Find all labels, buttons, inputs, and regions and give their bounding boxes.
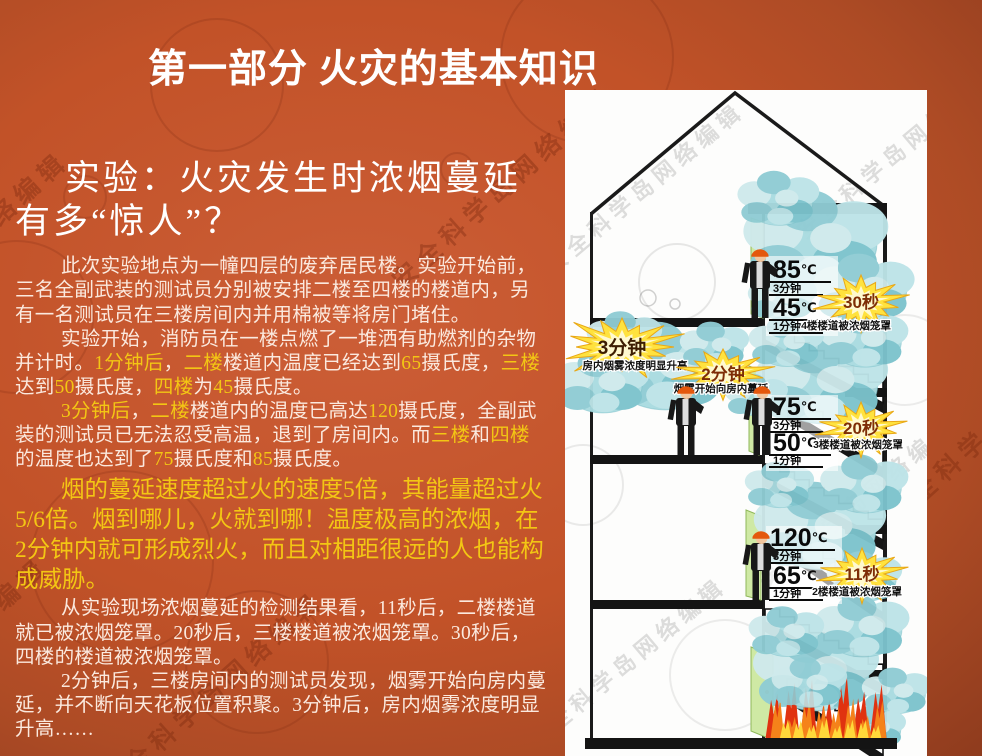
experiment-subtitle: 实验：火灾发生时浓烟蔓延有多“惊人”？ (15, 158, 540, 243)
paragraph: 2分钟后，三楼房间内的测试员发现，烟雾开始向房内蔓延，并不断向天花板位置积聚。3… (15, 670, 548, 742)
left-wall (590, 212, 593, 748)
paragraph: 实验开始，消防员在一楼点燃了一堆洒有助燃剂的杂物并计时。1分钟后，二楼楼道内温度… (15, 328, 548, 400)
text-run: 摄氏度， (421, 353, 500, 374)
slide-title: 第一部分 火灾的基本知识 (148, 38, 599, 94)
text-run: 75 (154, 449, 174, 470)
caption-3f: 3楼楼道被浓烟笼罩 (813, 438, 903, 451)
svg-text:30秒: 30秒 (843, 292, 879, 312)
text-run: 65 (401, 353, 421, 374)
text-run: 为 (194, 377, 214, 398)
text-run: 45 (213, 377, 233, 398)
text-run: 摄氏度。 (233, 377, 312, 398)
text-run: 120 (368, 401, 398, 422)
text-run: 摄氏度， (75, 377, 154, 398)
ground (585, 738, 897, 749)
building-diagram: 安全科学岛网络编辑 安全科学岛网络编辑 安全科学岛网络编辑 安全科学岛网络编辑 (565, 90, 927, 756)
text-run: 四楼 (154, 377, 194, 398)
text-run: 2分钟后，三楼房间内的测试员发现，烟雾开始向房内蔓延，并不断向天花板位置积聚。3… (15, 671, 546, 740)
text-run: 二楼 (150, 401, 190, 422)
text-run: 从实验现场浓烟蔓延的检测结果看，11秒后，二楼楼道就已被浓烟笼罩。20秒后，三楼… (15, 598, 536, 667)
text-run: 此次实验地点为一幢四层的废弃居民楼。实验开始前，三名全副武装的测试员分别被安排二… (15, 256, 536, 325)
text-run: 50 (55, 377, 75, 398)
text-run: 楼道内温度已经达到 (223, 353, 401, 374)
article: 实验：火灾发生时浓烟蔓延有多“惊人”？ 此次实验地点为一幢四层的废弃居民楼。实验… (15, 158, 548, 742)
text-run: 四楼 (490, 425, 530, 446)
text-run: 摄氏度。 (273, 449, 352, 470)
caption-4f: 4楼楼道被浓烟笼罩 (801, 319, 891, 332)
caption-2f: 2楼楼道被浓烟笼罩 (812, 585, 902, 598)
caption-room-3min: 房内烟雾浓度明显升高 (583, 359, 688, 372)
paragraph: 从实验现场浓烟蔓延的检测结果看，11秒后，二楼楼道就已被浓烟笼罩。20秒后，三楼… (15, 597, 548, 669)
text-run: 和 (470, 425, 490, 446)
text-run: ， (164, 353, 184, 374)
time-3f-1min: 1分钟 (773, 453, 801, 467)
text-run: 85 (253, 449, 273, 470)
text-run: ， (130, 401, 150, 422)
text-run: 的温度也达到了 (15, 449, 154, 470)
paragraph: 烟的蔓延速度超过火的速度5倍，其能量超过火5/6倍。烟到哪儿，火就到哪！温度极高… (15, 476, 548, 595)
slide: 安全科学岛网络编辑 安全科学岛网络编辑 安全科学岛网络编辑 安全科学岛网络编辑 … (0, 0, 982, 756)
time-4f-3min: 3分钟 (773, 281, 801, 295)
text-run: 三楼 (501, 353, 541, 374)
paragraph: 此次实验地点为一幢四层的废弃居民楼。实验开始前，三名全副武装的测试员分别被安排二… (15, 255, 548, 327)
text-run: 摄氏度和 (174, 449, 253, 470)
text-run: 烟的蔓延速度超过火的速度5倍，其能量超过火5/6倍。烟到哪儿，火就到哪！温度极高… (15, 477, 544, 593)
article-paragraphs: 此次实验地点为一幢四层的废弃居民楼。实验开始前，三名全副武装的测试员分别被安排二… (15, 255, 548, 742)
svg-text:11秒: 11秒 (845, 564, 880, 584)
text-run: 1分钟后 (94, 353, 163, 374)
time-2f-1min: 1分钟 (773, 586, 801, 600)
text-run: 楼道内的温度已高达 (190, 401, 368, 422)
paragraph: 3分钟后，二楼楼道内的温度已高达120摄氏度，全副武装的测试员已无法忍受高温，退… (15, 400, 548, 472)
time-4f-1min: 1分钟 (773, 319, 801, 333)
svg-text:3分钟: 3分钟 (598, 336, 647, 359)
text-run: 达到 (15, 377, 55, 398)
text-run: 三楼 (431, 425, 471, 446)
text-run: 3分钟后 (61, 401, 130, 422)
text-run: 二楼 (183, 353, 223, 374)
svg-text:20秒: 20秒 (843, 418, 879, 438)
svg-text:2分钟: 2分钟 (701, 364, 744, 384)
